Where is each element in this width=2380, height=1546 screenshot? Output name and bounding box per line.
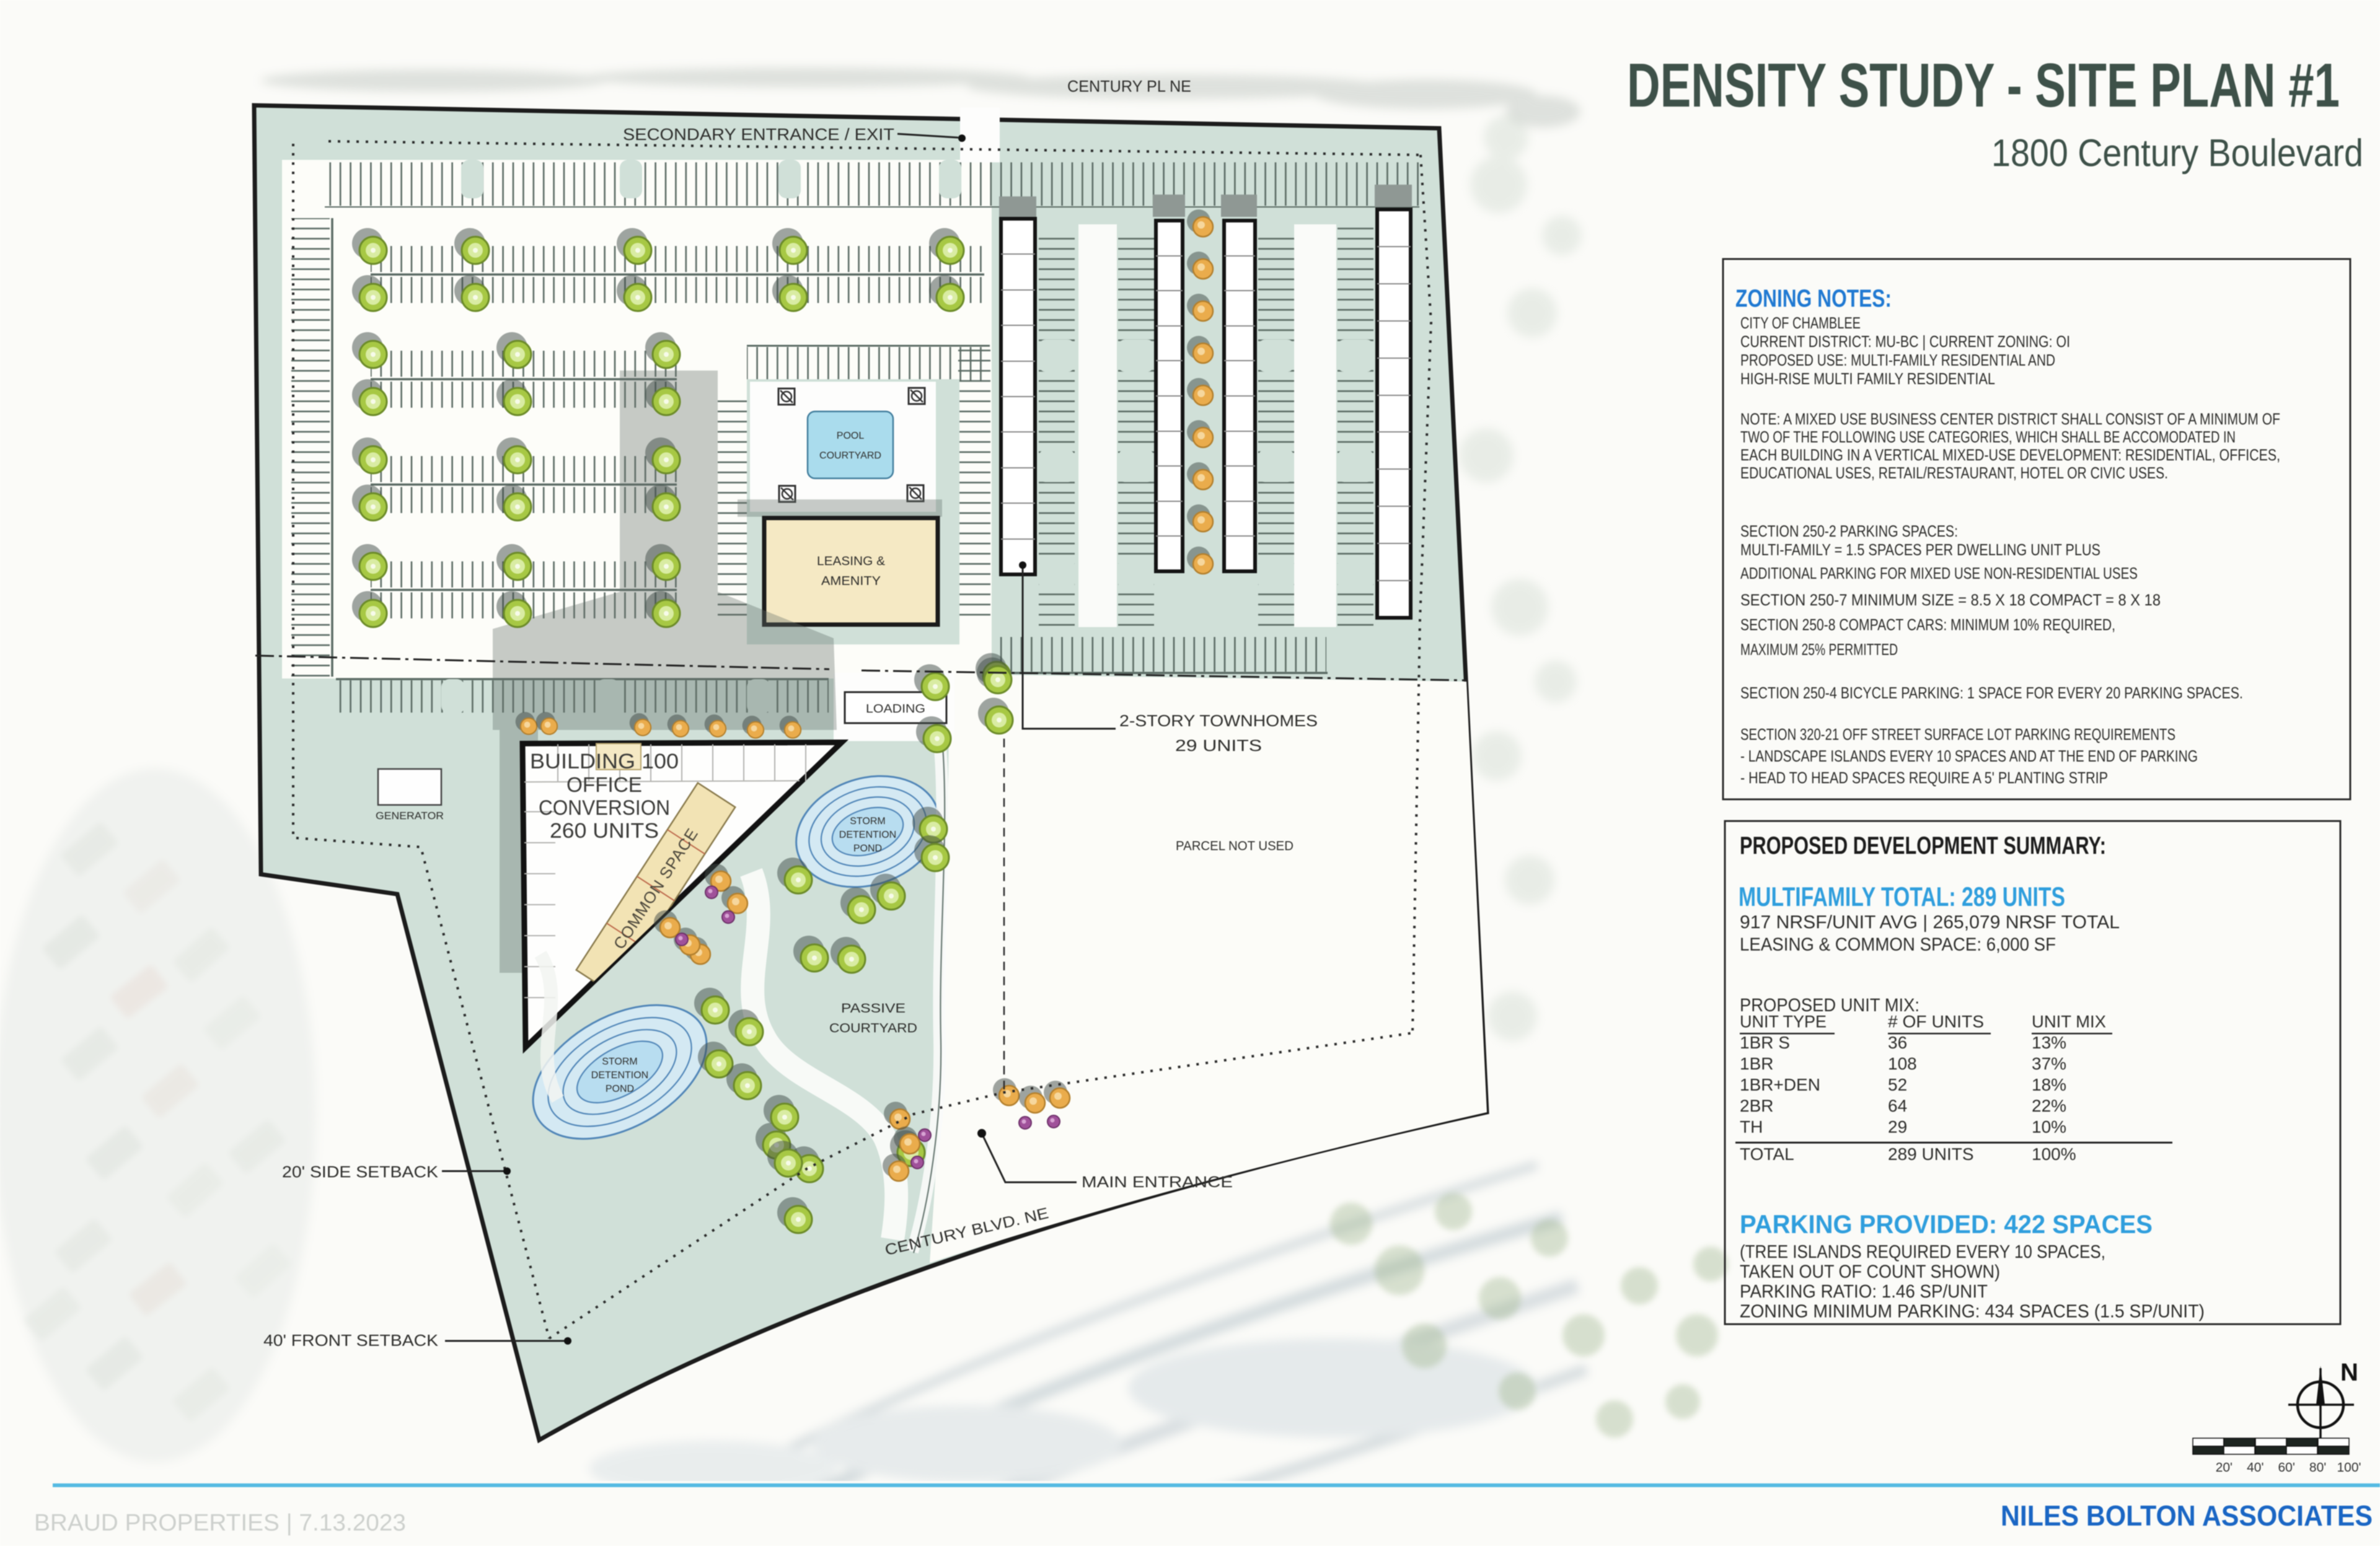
svg-text:289 UNITS: 289 UNITS bbox=[1888, 1144, 1974, 1164]
svg-text:2BR: 2BR bbox=[1740, 1096, 1773, 1115]
svg-text:64: 64 bbox=[1888, 1096, 1907, 1115]
svg-text:GENERATOR: GENERATOR bbox=[376, 810, 444, 822]
svg-text:UNIT TYPE: UNIT TYPE bbox=[1740, 1012, 1827, 1031]
svg-text:60': 60' bbox=[2278, 1460, 2295, 1475]
svg-text:BUILDING 100: BUILDING 100 bbox=[530, 750, 679, 773]
svg-text:PARKING PROVIDED: 422 SPACES: PARKING PROVIDED: 422 SPACES bbox=[1740, 1210, 2153, 1239]
svg-text:80': 80' bbox=[2309, 1460, 2326, 1475]
svg-text:POOL: POOL bbox=[837, 431, 865, 441]
svg-text:STORM: STORM bbox=[602, 1056, 637, 1067]
svg-text:SECTION 250-4 BICYCLE PARKING:: SECTION 250-4 BICYCLE PARKING: 1 SPACE F… bbox=[1740, 683, 2243, 702]
svg-text:HIGH-RISE MULTI FAMILY RESIDEN: HIGH-RISE MULTI FAMILY RESIDENTIAL bbox=[1740, 369, 1995, 388]
svg-text:10%: 10% bbox=[2032, 1117, 2066, 1136]
svg-text:POND: POND bbox=[853, 843, 882, 854]
svg-text:917 NRSF/UNIT AVG | 265,079: 917 NRSF/UNIT AVG | 265,079 NRSF TOTAL bbox=[1740, 912, 2120, 933]
svg-text:NILES BOLTON ASSOCIATES: NILES BOLTON ASSOCIATES bbox=[2001, 1500, 2373, 1532]
svg-text:EACH BUILDING IN A VERTICAL MI: EACH BUILDING IN A VERTICAL MIXED-USE DE… bbox=[1740, 446, 2280, 464]
svg-text:SECTION 250-8 COMPACT CARS: M: SECTION 250-8 COMPACT CARS: MINIMUM 10% … bbox=[1740, 615, 2115, 634]
svg-text:PARKING RATIO: 1.46 SP/UNIT: PARKING RATIO: 1.46 SP/UNIT bbox=[1740, 1281, 1988, 1302]
svg-text:DETENTION: DETENTION bbox=[839, 830, 896, 840]
svg-text:CURRENT DISTRICT: MU-BC | CURR: CURRENT DISTRICT: MU-BC | CURRENT ZONING… bbox=[1740, 332, 2070, 351]
svg-text:29: 29 bbox=[1888, 1117, 1907, 1136]
svg-text:CITY OF CHAMBLEE: CITY OF CHAMBLEE bbox=[1740, 314, 1861, 332]
svg-text:2-STORY TOWNHOMES: 2-STORY TOWNHOMES bbox=[1119, 711, 1318, 730]
svg-text:13%: 13% bbox=[2032, 1033, 2066, 1052]
svg-text:PROPOSED USE: MULTI-FAMILY RES: PROPOSED USE: MULTI-FAMILY RESIDENTIAL A… bbox=[1740, 351, 2055, 369]
svg-text:1800 Century Boulevard: 1800 Century Boulevard bbox=[1991, 132, 2363, 175]
svg-text:# OF UNITS: # OF UNITS bbox=[1888, 1012, 1984, 1031]
svg-text:22%: 22% bbox=[2032, 1096, 2066, 1115]
svg-text:STORM: STORM bbox=[850, 816, 885, 827]
svg-text:(TREE ISLANDS REQUIRED EVERY 1: (TREE ISLANDS REQUIRED EVERY 10 SPACES, bbox=[1740, 1242, 2105, 1262]
svg-text:MULTI-FAMILY = 1.5 SPACES PER: MULTI-FAMILY = 1.5 SPACES PER DWELLING U… bbox=[1740, 540, 2100, 559]
svg-text:MAXIMUM 25% PERMITTED: MAXIMUM 25% PERMITTED bbox=[1740, 640, 1898, 659]
svg-text:COURTYARD: COURTYARD bbox=[829, 1021, 917, 1035]
svg-text:SECONDARY ENTRANCE / EXIT: SECONDARY ENTRANCE / EXIT bbox=[623, 125, 894, 144]
svg-text:- HEAD TO HEAD SPACES REQUIRE: - HEAD TO HEAD SPACES REQUIRE A 5' PLANT… bbox=[1740, 768, 2108, 787]
svg-text:1BR: 1BR bbox=[1740, 1054, 1773, 1073]
svg-text:SECTION 320-21 OFF STREET SURF: SECTION 320-21 OFF STREET SURFACE LOT PA… bbox=[1740, 725, 2175, 744]
svg-text:TAKEN OUT OF COUNT SHOWN): TAKEN OUT OF COUNT SHOWN) bbox=[1740, 1262, 2000, 1282]
svg-text:TH: TH bbox=[1740, 1117, 1763, 1136]
svg-text:N: N bbox=[2340, 1359, 2358, 1386]
svg-text:PROPOSED DEVELOPMENT SUMMARY:: PROPOSED DEVELOPMENT SUMMARY: bbox=[1740, 832, 2106, 859]
svg-text:TOTAL: TOTAL bbox=[1740, 1144, 1794, 1164]
svg-text:CENTURY PL NE: CENTURY PL NE bbox=[1067, 77, 1191, 95]
svg-text:UNIT MIX: UNIT MIX bbox=[2032, 1012, 2106, 1031]
svg-text:DETENTION: DETENTION bbox=[591, 1070, 648, 1081]
svg-text:ZONING NOTES:: ZONING NOTES: bbox=[1735, 285, 1892, 312]
svg-text:29 UNITS: 29 UNITS bbox=[1175, 736, 1262, 755]
svg-text:DENSITY STUDY - SITE PLAN #1: DENSITY STUDY - SITE PLAN #1 bbox=[1627, 51, 2340, 120]
svg-text:SECTION 250-2 PARKING SPACES:: SECTION 250-2 PARKING SPACES: bbox=[1740, 522, 1958, 540]
svg-text:MAIN ENTRANCE: MAIN ENTRANCE bbox=[1082, 1174, 1233, 1191]
svg-text:18%: 18% bbox=[2032, 1075, 2066, 1094]
svg-text:52: 52 bbox=[1888, 1075, 1907, 1094]
svg-text:1BR S: 1BR S bbox=[1740, 1033, 1790, 1052]
svg-text:37%: 37% bbox=[2032, 1054, 2066, 1073]
svg-text:TWO OF THE FOLLOWING USE CATEG: TWO OF THE FOLLOWING USE CATEGORIES, WHI… bbox=[1740, 428, 2236, 446]
svg-text:100%: 100% bbox=[2032, 1144, 2076, 1164]
svg-text:NOTE: A MIXED USE BUSINESS CEN: NOTE: A MIXED USE BUSINESS CENTER DISTRI… bbox=[1740, 410, 2280, 428]
svg-text:POND: POND bbox=[606, 1084, 634, 1094]
svg-text:20': 20' bbox=[2216, 1460, 2232, 1475]
svg-text:20' SIDE SETBACK: 20' SIDE SETBACK bbox=[282, 1162, 439, 1181]
svg-text:CONVERSION: CONVERSION bbox=[539, 796, 670, 820]
svg-text:40': 40' bbox=[2247, 1460, 2263, 1475]
svg-text:PASSIVE: PASSIVE bbox=[841, 1001, 906, 1016]
svg-text:COURTYARD: COURTYARD bbox=[819, 450, 881, 461]
svg-text:EDUCATIONAL USES, RETAIL/RESTA: EDUCATIONAL USES, RETAIL/RESTAURANT, HOT… bbox=[1740, 463, 2168, 482]
svg-text:BRAUD PROPERTIES | 7.13.2023: BRAUD PROPERTIES | 7.13.2023 bbox=[34, 1510, 406, 1536]
svg-text:260 UNITS: 260 UNITS bbox=[550, 819, 659, 843]
svg-text:108: 108 bbox=[1888, 1054, 1917, 1073]
svg-text:LEASING &: LEASING & bbox=[817, 555, 886, 568]
svg-text:AMENITY: AMENITY bbox=[821, 574, 881, 588]
svg-text:LEASING & COMMON SPACE: 6,000: LEASING & COMMON SPACE: 6,000 SF bbox=[1740, 934, 2056, 955]
svg-text:ZONING MINIMUM PARKING: 434 SP: ZONING MINIMUM PARKING: 434 SPACES (1.5 … bbox=[1740, 1301, 2205, 1322]
svg-text:LOADING: LOADING bbox=[866, 703, 925, 716]
svg-text:40' FRONT SETBACK: 40' FRONT SETBACK bbox=[263, 1331, 439, 1350]
svg-text:100': 100' bbox=[2337, 1460, 2361, 1475]
svg-text:1BR+DEN: 1BR+DEN bbox=[1740, 1075, 1820, 1094]
svg-text:SECTION 250-7 MINIMUM SIZE =: SECTION 250-7 MINIMUM SIZE = 8.5 X 18 CO… bbox=[1740, 591, 2161, 609]
svg-text:MULTIFAMILY TOTAL: 289 UNITS: MULTIFAMILY TOTAL: 289 UNITS bbox=[1739, 882, 2065, 912]
svg-text:PARCEL NOT USED: PARCEL NOT USED bbox=[1176, 839, 1294, 853]
svg-text:OFFICE: OFFICE bbox=[566, 773, 642, 797]
svg-text:- LANDSCAPE ISLANDS EVERY 10 S: - LANDSCAPE ISLANDS EVERY 10 SPACES AND … bbox=[1740, 747, 2198, 765]
svg-text:36: 36 bbox=[1888, 1033, 1907, 1052]
svg-text:ADDITIONAL PARKING FOR MIXED U: ADDITIONAL PARKING FOR MIXED USE NON-RES… bbox=[1740, 564, 2138, 582]
